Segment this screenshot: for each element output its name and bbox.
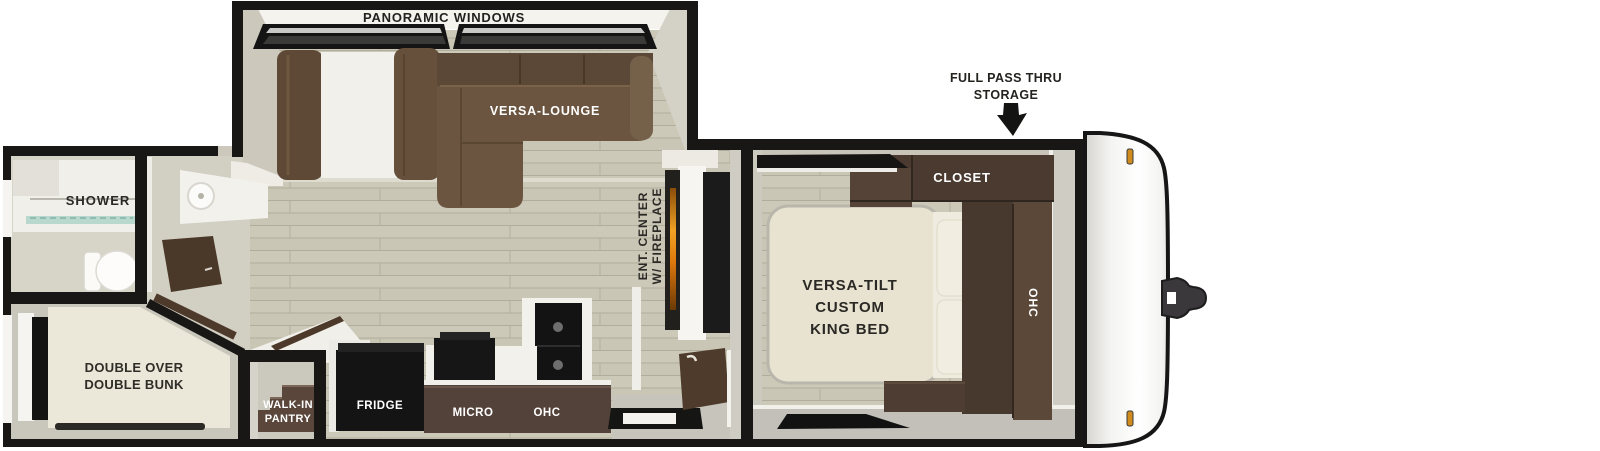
svg-text:ENT. CENTER: ENT. CENTER (636, 192, 650, 281)
svg-text:DOUBLE OVER: DOUBLE OVER (85, 360, 184, 375)
svg-text:MICRO: MICRO (453, 407, 494, 419)
svg-text:OHC: OHC (533, 407, 560, 419)
svg-text:PANORAMIC WINDOWS: PANORAMIC WINDOWS (363, 10, 525, 25)
svg-text:FRIDGE: FRIDGE (357, 400, 403, 412)
svg-text:OHC: OHC (1026, 288, 1040, 318)
svg-text:PANTRY: PANTRY (265, 413, 312, 425)
svg-text:VERSA-LOUNGE: VERSA-LOUNGE (490, 104, 600, 118)
svg-text:STORAGE: STORAGE (974, 88, 1038, 102)
svg-text:CLOSET: CLOSET (933, 170, 991, 185)
svg-text:CUSTOM: CUSTOM (815, 299, 885, 316)
svg-text:SHOWER: SHOWER (66, 193, 131, 208)
svg-text:VERSA-TILT: VERSA-TILT (802, 277, 897, 294)
svg-text:W/ FIREPLACE: W/ FIREPLACE (650, 188, 664, 285)
svg-text:KING BED: KING BED (810, 321, 890, 338)
svg-text:FULL PASS THRU: FULL PASS THRU (950, 71, 1062, 85)
svg-text:WALK-IN: WALK-IN (263, 399, 313, 411)
svg-text:DOUBLE BUNK: DOUBLE BUNK (84, 377, 184, 392)
